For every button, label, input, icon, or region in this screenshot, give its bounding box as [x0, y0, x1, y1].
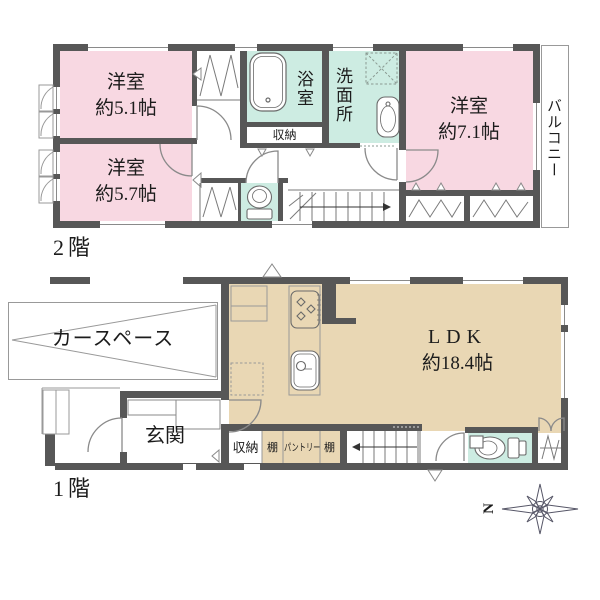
room-size: 約7.1帖: [409, 120, 529, 146]
room-label-washroom: 洗面所: [331, 55, 355, 135]
stairwell-1f: [347, 431, 422, 463]
wall: [221, 277, 229, 393]
wall: [221, 391, 229, 400]
wall: [120, 391, 127, 418]
wall: [45, 434, 55, 466]
wall: [336, 318, 356, 324]
wall: [322, 44, 329, 148]
wall: [399, 44, 406, 150]
window: [333, 44, 373, 51]
room-label-ldk: LDK 約18.4帖: [380, 324, 535, 377]
wall: [221, 428, 229, 463]
room-size: 約5.7帖: [66, 182, 186, 208]
closet-7-1-right: [473, 200, 528, 217]
door-bedroom-5-1: [197, 106, 231, 140]
window: [53, 87, 60, 109]
window: [88, 44, 168, 51]
window: [235, 44, 257, 51]
compass-north-label: N: [481, 503, 498, 514]
room-label-bedroom-7-1: 洋室 約7.1帖: [409, 94, 529, 145]
closet-1f-fill: [538, 433, 561, 463]
floorplan-canvas: 洋室 約5.1帖 洋室 約5.7帖 洋室 約7.1帖 浴室 洗面所 収納 バルコ…: [0, 0, 600, 600]
casement-windows: [39, 85, 53, 203]
window: [561, 305, 568, 325]
room-label-balcony: バルコニー: [544, 90, 564, 185]
stairs-2f: [288, 190, 399, 221]
wall: [221, 424, 422, 431]
room-name: 洋室: [409, 94, 529, 120]
room-label-entrance: 玄関: [133, 423, 197, 450]
wall: [399, 182, 406, 228]
room-size: 約18.4帖: [380, 351, 535, 377]
window: [533, 103, 540, 170]
window: [463, 277, 523, 284]
wall: [120, 391, 229, 398]
closet-2f-a: [197, 55, 240, 100]
wall: [120, 452, 127, 470]
wall: [464, 196, 470, 228]
room-label-bedroom-5-1: 洋室 約5.1帖: [66, 70, 186, 121]
wall: [278, 183, 283, 221]
floor-label-1f: 1階: [53, 474, 143, 504]
wall: [532, 427, 538, 463]
wall: [240, 143, 329, 148]
wall: [340, 431, 347, 463]
wall: [465, 427, 538, 433]
window: [463, 44, 513, 51]
wall: [53, 138, 197, 144]
room-label-carspace: カースペース: [28, 326, 198, 353]
room-label-bath: 浴室: [292, 58, 316, 120]
closet-7-1-left: [409, 200, 461, 217]
wall: [322, 277, 336, 324]
window: [53, 179, 60, 201]
wall: [50, 277, 90, 284]
room-label-pantry: パントリー: [284, 443, 319, 454]
window: [272, 221, 312, 228]
wall: [55, 463, 568, 470]
floor-label-2f: 2階: [53, 233, 143, 263]
wall: [240, 44, 247, 148]
door-toilet-2f: [246, 151, 278, 183]
room-name: 洋室: [66, 70, 186, 96]
window: [350, 277, 410, 284]
window: [100, 221, 165, 228]
closet-2f-b: [200, 183, 236, 221]
window: [53, 114, 60, 136]
door-entrance: [88, 418, 122, 452]
door-washroom: [365, 148, 397, 180]
room-label-shelf-left: 棚: [262, 442, 283, 454]
wall: [240, 122, 329, 127]
room-label-shelf-right: 棚: [319, 442, 340, 454]
compass-rose: [502, 484, 578, 534]
wall: [238, 183, 241, 221]
porch: [42, 388, 120, 434]
wall: [192, 51, 197, 106]
wall-gap: [244, 464, 260, 470]
room-size: 約5.1帖: [66, 96, 186, 122]
room-label-closet-2f: 収納: [247, 129, 322, 142]
room-toilet-1f: [468, 433, 532, 463]
room-name: 洋室: [66, 156, 186, 182]
wall: [329, 143, 360, 148]
room-toilet-2f: [241, 183, 278, 221]
room-label-storage-1f: 収納: [229, 441, 262, 455]
room-label-bedroom-5-7: 洋室 約5.7帖: [66, 156, 186, 207]
window: [53, 152, 60, 174]
hall-1f: [422, 431, 468, 463]
wall-gap: [183, 464, 196, 470]
window: [561, 332, 568, 398]
room-name: LDK: [380, 324, 535, 351]
